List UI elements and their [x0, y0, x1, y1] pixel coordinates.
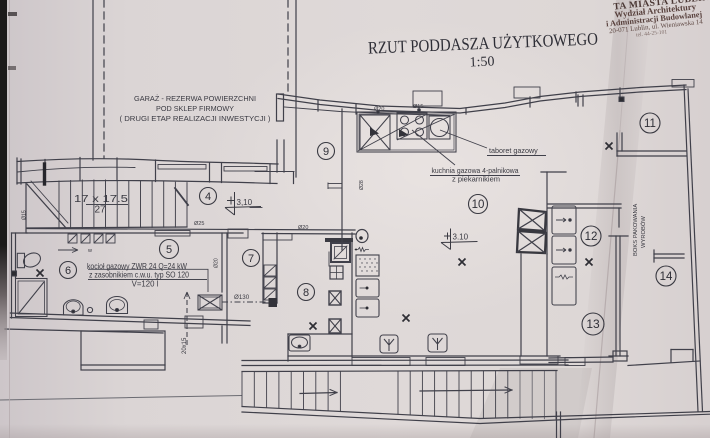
svg-text:27: 27: [94, 205, 106, 216]
svg-text:z piekarnikiem: z piekarnikiem: [452, 175, 500, 184]
svg-text:Ø20: Ø20: [214, 258, 220, 268]
svg-text:14: 14: [660, 271, 673, 283]
svg-text:7: 7: [248, 253, 254, 265]
svg-text:( DRUGI ETAP REALIZACJI INWEST: ( DRUGI ETAP REALIZACJI INWESTYCJI ): [120, 114, 271, 123]
svg-text:5: 5: [166, 244, 172, 256]
svg-text:Ø20: Ø20: [374, 107, 384, 113]
svg-text:8: 8: [303, 287, 309, 299]
svg-text:w: w: [87, 248, 92, 254]
svg-text:GARAŻ - REZERWA POWIERZCHNI: GARAŻ - REZERWA POWIERZCHNI: [134, 94, 256, 103]
svg-text:20x15: 20x15: [182, 337, 188, 354]
svg-text:V=120 l: V=120 l: [132, 280, 159, 289]
svg-text:12: 12: [585, 231, 598, 243]
svg-text:Ø130: Ø130: [234, 294, 250, 301]
svg-text:4: 4: [205, 191, 211, 203]
svg-text:13: 13: [586, 317, 600, 331]
svg-text:6: 6: [65, 265, 71, 277]
svg-text:3,10: 3,10: [237, 198, 253, 207]
svg-text:17 x 17.5: 17 x 17.5: [74, 194, 129, 205]
svg-text:WYROBÓW: WYROBÓW: [640, 216, 647, 248]
svg-text:POD SKLEP FIRMOWY: POD SKLEP FIRMOWY: [156, 104, 234, 113]
svg-text:10: 10: [472, 199, 485, 211]
svg-text:Ø25: Ø25: [194, 221, 204, 227]
svg-text:BOKS PAKOWANIA: BOKS PAKOWANIA: [633, 204, 639, 256]
svg-text:3.10: 3.10: [453, 233, 469, 242]
svg-text:z zasobnikiem c.w.u. typ SO 12: z zasobnikiem c.w.u. typ SO 120: [89, 271, 190, 280]
svg-text:Ø28: Ø28: [359, 180, 365, 190]
svg-text:9: 9: [323, 146, 329, 158]
svg-text:Ø15: Ø15: [413, 104, 423, 110]
svg-text:Ø15: Ø15: [22, 210, 28, 220]
svg-text:1:50: 1:50: [469, 55, 494, 71]
svg-text:Ø20: Ø20: [298, 225, 308, 231]
svg-text:11: 11: [644, 118, 656, 130]
svg-text:taboret gazowy: taboret gazowy: [489, 146, 538, 155]
